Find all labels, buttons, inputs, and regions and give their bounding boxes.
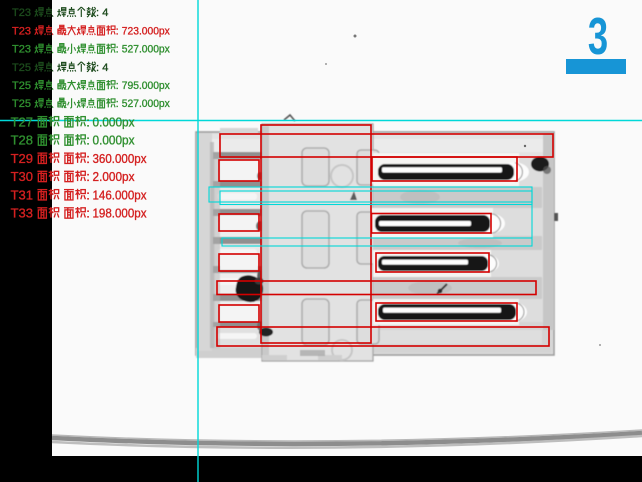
svg-text:T25: T25 xyxy=(12,62,31,74)
svg-text::: : xyxy=(96,7,99,19)
svg-text:T31: T31 xyxy=(11,187,33,202)
svg-text::: : xyxy=(86,169,90,184)
svg-text:0.000px: 0.000px xyxy=(93,114,135,129)
svg-text:723.000px: 723.000px xyxy=(122,25,170,37)
svg-text::: : xyxy=(96,62,99,74)
svg-text:795.000px: 795.000px xyxy=(122,80,170,92)
svg-text:T33: T33 xyxy=(11,206,33,221)
svg-text::: : xyxy=(116,44,119,56)
svg-text::: : xyxy=(86,206,90,221)
svg-text::: : xyxy=(86,151,90,166)
svg-text:4: 4 xyxy=(102,7,108,19)
svg-text:T27: T27 xyxy=(11,114,33,129)
svg-text:2.000px: 2.000px xyxy=(93,169,135,184)
svg-text:T23: T23 xyxy=(12,25,31,37)
svg-text:4: 4 xyxy=(102,62,108,74)
svg-text::: : xyxy=(86,187,90,202)
svg-text::: : xyxy=(86,133,90,148)
svg-text:0.000px: 0.000px xyxy=(93,133,135,148)
svg-text:T25: T25 xyxy=(12,80,31,92)
svg-text:527.000px: 527.000px xyxy=(122,44,170,56)
svg-text:T29: T29 xyxy=(11,151,33,166)
svg-text:T30: T30 xyxy=(11,169,33,184)
svg-text::: : xyxy=(116,80,119,92)
svg-text:T23: T23 xyxy=(12,44,31,56)
svg-text:T25: T25 xyxy=(12,98,31,110)
svg-text:146.000px: 146.000px xyxy=(93,187,147,202)
svg-text::: : xyxy=(86,114,90,129)
svg-text:360.000px: 360.000px xyxy=(93,151,147,166)
svg-text:T28: T28 xyxy=(11,133,33,148)
svg-text:198.000px: 198.000px xyxy=(93,206,147,221)
svg-text::: : xyxy=(116,25,119,37)
svg-text:527.000px: 527.000px xyxy=(122,98,170,110)
svg-text::: : xyxy=(116,98,119,110)
svg-text:T23: T23 xyxy=(12,7,31,19)
